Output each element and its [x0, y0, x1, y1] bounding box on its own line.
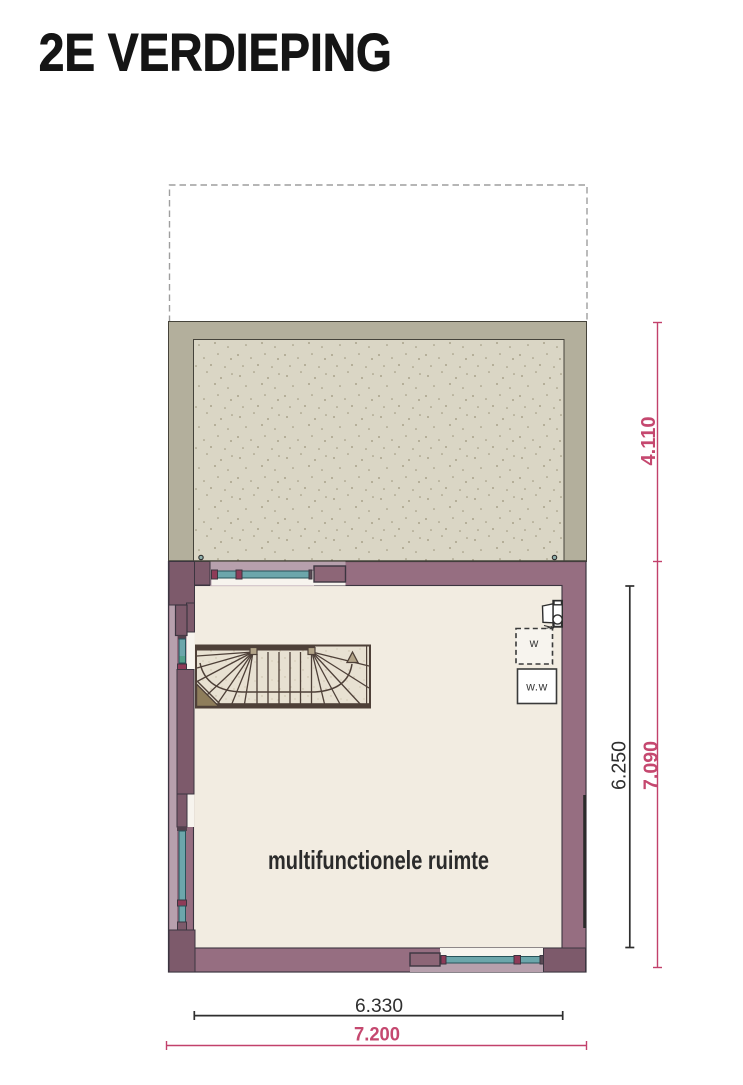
svg-text:w: w — [529, 636, 539, 650]
svg-text:6.250: 6.250 — [609, 741, 631, 790]
svg-text:6.330: 6.330 — [355, 996, 403, 1017]
svg-text:4.110: 4.110 — [638, 417, 660, 466]
svg-text:w.w: w.w — [525, 680, 548, 694]
svg-text:7.200: 7.200 — [354, 1025, 400, 1046]
svg-text:7.090: 7.090 — [641, 741, 663, 790]
svg-text:multifunctionele ruimte: multifunctionele ruimte — [268, 845, 489, 875]
svg-text:2E VERDIEPING: 2E VERDIEPING — [39, 24, 392, 83]
